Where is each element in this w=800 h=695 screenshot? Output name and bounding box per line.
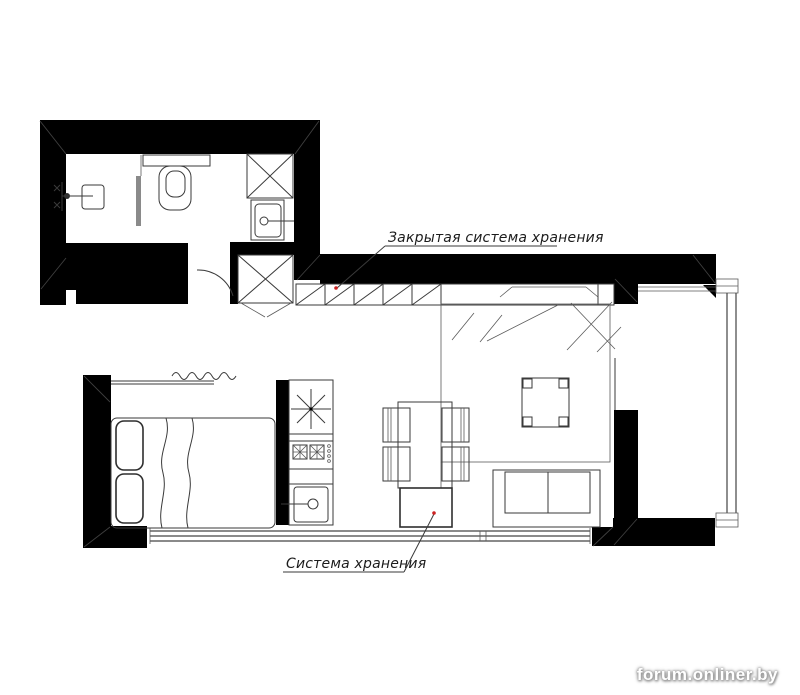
window-bottom-glass: [150, 531, 590, 541]
toilet-bowl-inner: [166, 171, 185, 197]
dining-chairs: [383, 408, 469, 481]
closed-storage-run: [296, 284, 614, 305]
kitchen-unit: [281, 380, 333, 525]
leader-dot-closed-storage: [334, 286, 338, 290]
blanket-fold: [161, 418, 194, 528]
floor-plan: Закрытая система хранения Система хранен…: [0, 0, 800, 695]
pillow-bottom: [116, 474, 143, 523]
eight-ray-star-icon: [291, 389, 331, 429]
window-bottom: [150, 528, 590, 544]
living-table: [522, 378, 569, 427]
wall-bedroom-left: [83, 375, 111, 528]
kitchen-sink: [281, 484, 333, 525]
door-swing-arc: [197, 270, 233, 296]
bulkhead-lines: [638, 287, 716, 291]
wall-bathroom-top: [40, 120, 320, 154]
wall-bedroom-corner: [83, 526, 147, 548]
curtain-divider: [111, 373, 236, 385]
pillow-top: [116, 421, 143, 470]
shower-tray: [82, 185, 104, 209]
sofa: [493, 470, 600, 527]
toilet: [143, 155, 210, 210]
wall-bathroom-bottom-step: [76, 282, 188, 304]
bathroom-sink: [251, 200, 294, 240]
curtain-squiggle: [172, 373, 236, 380]
storage-cell-hatch: [296, 284, 441, 305]
dining-table: [398, 402, 452, 488]
rug: [441, 304, 610, 462]
hall: [197, 255, 293, 317]
bedroom: [111, 373, 275, 529]
ventilation-shaft-icon: [247, 154, 293, 198]
bathroom: [54, 154, 294, 240]
ceiling-opening-marks: [452, 302, 621, 352]
toilet-bowl: [159, 166, 191, 210]
kitchen-cell-dividers: [289, 434, 333, 469]
shower-glass-partition: [136, 176, 141, 226]
bed: [111, 418, 275, 528]
wardrobe-column-icon: [238, 255, 293, 317]
storage-front-detail: [500, 287, 598, 297]
stove-icon: [293, 445, 330, 463]
wall-bottom-right-band: [613, 518, 715, 546]
label-closed-storage: Закрытая система хранения: [388, 230, 604, 246]
wall-over-column: [230, 242, 320, 255]
storage-box: [400, 488, 452, 527]
living-room: [441, 302, 621, 527]
dining-set: [383, 402, 469, 527]
floor-plan-page: Закрытая система хранения Система хранен…: [0, 0, 800, 695]
wall-top-band: [320, 254, 716, 284]
curtain-track: [111, 381, 214, 384]
toilet-cistern: [143, 155, 210, 166]
wall-bathroom-right: [294, 120, 320, 280]
wall-kitchen-bar: [276, 380, 289, 525]
leader-dot-storage: [432, 511, 436, 515]
watermark: forum.onliner.by: [637, 665, 778, 685]
